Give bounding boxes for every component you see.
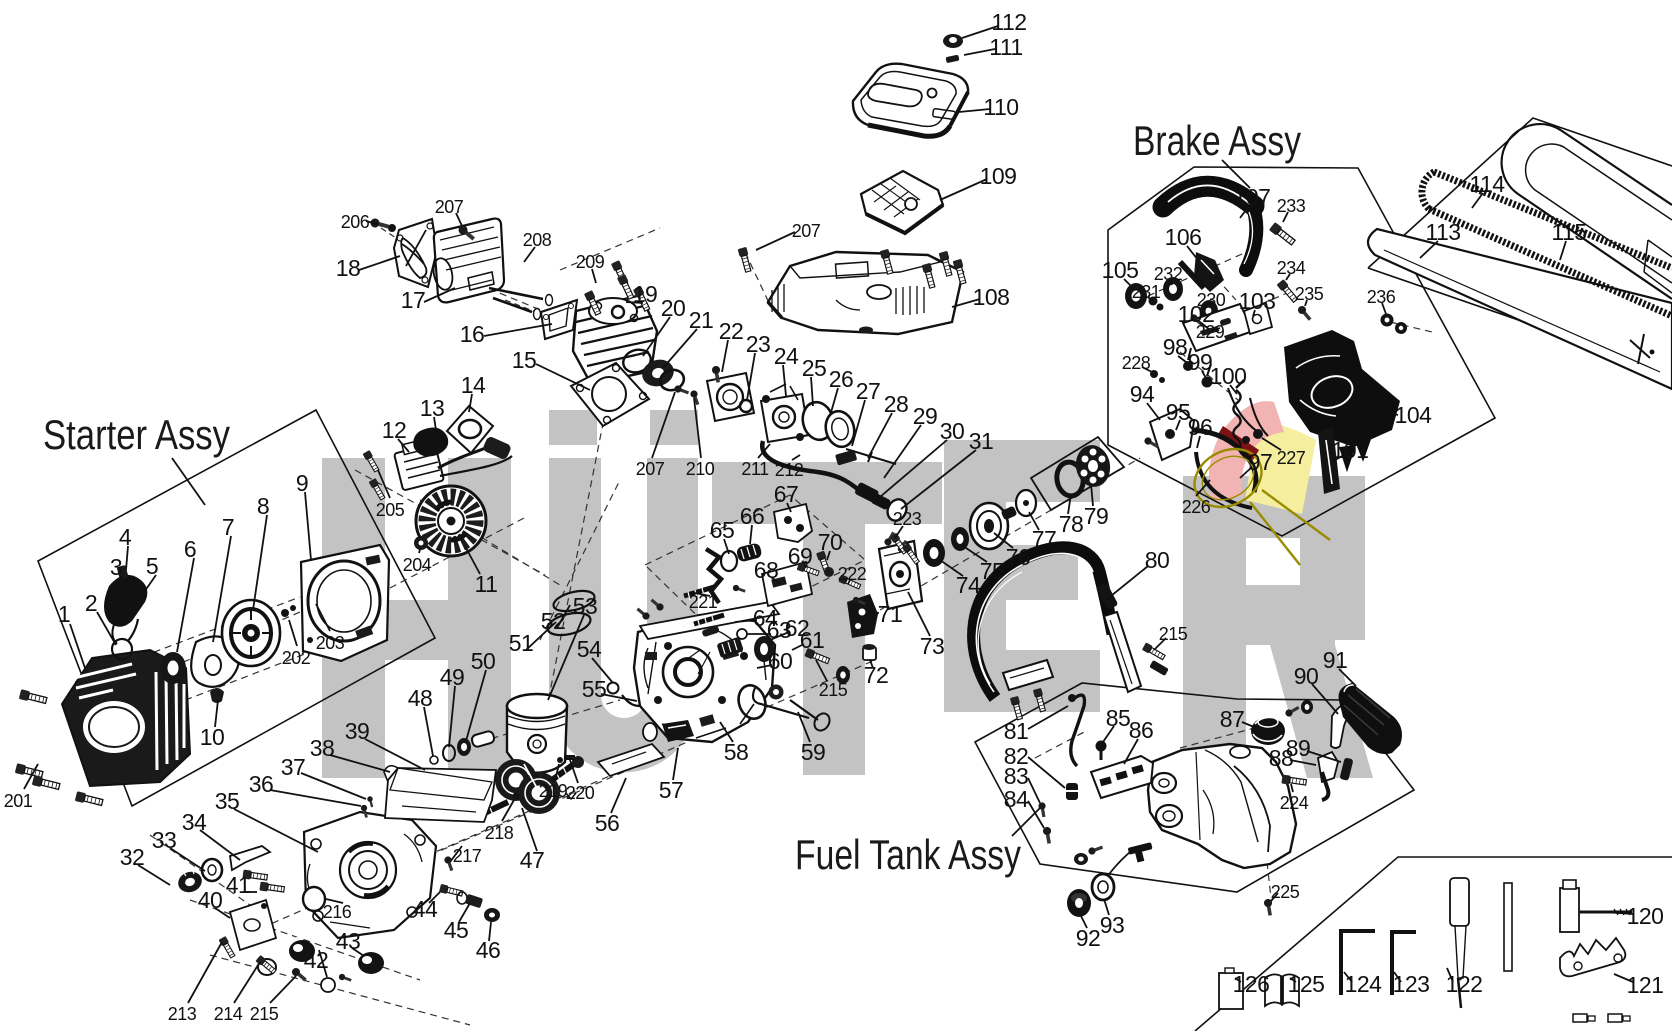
svg-text:69: 69	[788, 543, 813, 569]
svg-text:113: 113	[1425, 219, 1460, 245]
svg-text:Fuel Tank Assy: Fuel Tank Assy	[795, 831, 1021, 878]
svg-text:25: 25	[802, 355, 827, 381]
svg-text:227: 227	[1277, 448, 1306, 468]
svg-text:66: 66	[740, 503, 765, 529]
svg-text:224: 224	[1280, 793, 1309, 813]
svg-text:124: 124	[1345, 971, 1383, 997]
svg-text:79: 79	[1084, 503, 1109, 529]
svg-text:14: 14	[461, 372, 486, 398]
svg-text:208: 208	[523, 230, 552, 250]
svg-text:108: 108	[973, 284, 1010, 310]
svg-text:7: 7	[222, 514, 234, 540]
svg-text:65: 65	[710, 517, 735, 543]
svg-text:37: 37	[281, 754, 306, 780]
svg-text:222: 222	[838, 564, 867, 584]
svg-text:107: 107	[1234, 184, 1271, 210]
svg-text:1: 1	[58, 601, 70, 627]
svg-text:217: 217	[453, 846, 482, 866]
svg-text:223: 223	[893, 509, 922, 529]
svg-text:34: 34	[182, 809, 207, 835]
svg-text:54: 54	[577, 636, 602, 662]
svg-text:216: 216	[323, 902, 352, 922]
svg-text:35: 35	[215, 788, 240, 814]
svg-text:213: 213	[168, 1004, 197, 1024]
svg-text:80: 80	[1145, 547, 1170, 573]
svg-text:201: 201	[4, 791, 33, 811]
svg-text:32: 32	[120, 844, 145, 870]
svg-text:81: 81	[1004, 718, 1029, 744]
svg-text:75: 75	[980, 558, 1005, 584]
svg-text:3: 3	[110, 554, 122, 580]
svg-text:18: 18	[336, 255, 361, 281]
svg-text:112: 112	[991, 9, 1026, 35]
svg-text:30: 30	[940, 418, 965, 444]
svg-text:235: 235	[1295, 284, 1324, 304]
svg-text:106: 106	[1165, 224, 1202, 250]
svg-text:232: 232	[1154, 264, 1183, 284]
svg-text:104: 104	[1395, 402, 1433, 428]
svg-text:10: 10	[200, 724, 225, 750]
svg-text:77: 77	[1032, 526, 1057, 552]
svg-text:123: 123	[1393, 971, 1430, 997]
svg-text:92: 92	[1076, 925, 1101, 951]
svg-text:49: 49	[440, 664, 465, 690]
svg-text:87: 87	[1220, 706, 1245, 732]
svg-text:13: 13	[420, 395, 445, 421]
svg-text:2: 2	[85, 590, 97, 616]
svg-text:91: 91	[1323, 647, 1348, 673]
svg-text:230: 230	[1197, 290, 1226, 310]
svg-text:4: 4	[119, 524, 132, 550]
svg-text:33: 33	[152, 827, 177, 853]
svg-text:6: 6	[184, 536, 196, 562]
svg-text:42: 42	[304, 947, 329, 973]
svg-text:205: 205	[376, 500, 405, 520]
svg-text:44: 44	[413, 896, 438, 922]
svg-text:31: 31	[969, 428, 994, 454]
svg-text:105: 105	[1102, 257, 1139, 283]
svg-text:233: 233	[1277, 196, 1306, 216]
svg-text:89: 89	[1286, 735, 1311, 761]
svg-text:43: 43	[336, 928, 361, 954]
svg-text:111: 111	[989, 34, 1022, 60]
svg-text:16: 16	[460, 321, 485, 347]
svg-text:38: 38	[310, 735, 335, 761]
svg-text:56: 56	[595, 810, 620, 836]
svg-text:94: 94	[1130, 381, 1155, 407]
svg-text:57: 57	[659, 777, 684, 803]
svg-text:84: 84	[1004, 786, 1029, 812]
svg-text:115: 115	[1551, 219, 1586, 245]
svg-text:74: 74	[956, 572, 981, 598]
svg-text:228: 228	[1122, 353, 1151, 373]
svg-text:204: 204	[403, 555, 432, 575]
svg-text:202: 202	[282, 648, 311, 668]
svg-text:53: 53	[573, 593, 598, 619]
svg-text:5: 5	[146, 553, 158, 579]
svg-text:211: 211	[741, 459, 769, 479]
svg-text:46: 46	[476, 937, 501, 963]
svg-text:207: 207	[636, 459, 665, 479]
svg-text:221: 221	[689, 592, 718, 612]
svg-text:73: 73	[920, 633, 945, 659]
svg-text:51: 51	[509, 630, 534, 656]
svg-text:24: 24	[774, 343, 799, 369]
svg-text:209: 209	[576, 252, 605, 272]
svg-text:27: 27	[856, 378, 881, 404]
svg-text:39: 39	[345, 718, 370, 744]
svg-text:26: 26	[829, 366, 854, 392]
svg-text:17: 17	[401, 287, 426, 313]
svg-text:120: 120	[1627, 903, 1664, 929]
svg-text:9: 9	[296, 470, 308, 496]
svg-text:52: 52	[541, 608, 566, 634]
svg-text:207: 207	[792, 221, 821, 241]
svg-text:101: 101	[1332, 437, 1369, 463]
svg-text:93: 93	[1100, 912, 1125, 938]
svg-text:125: 125	[1288, 971, 1325, 997]
svg-text:19: 19	[633, 281, 658, 307]
svg-text:121: 121	[1627, 972, 1664, 998]
svg-text:8: 8	[257, 493, 269, 519]
svg-text:214: 214	[214, 1004, 243, 1024]
svg-text:219: 219	[539, 781, 568, 801]
svg-text:212: 212	[775, 460, 804, 480]
svg-text:225: 225	[1271, 882, 1300, 902]
svg-text:109: 109	[980, 163, 1017, 189]
svg-text:15: 15	[512, 347, 537, 373]
svg-text:100: 100	[1210, 363, 1247, 389]
svg-text:98: 98	[1163, 334, 1188, 360]
svg-text:36: 36	[249, 771, 274, 797]
svg-text:58: 58	[724, 739, 749, 765]
svg-text:85: 85	[1106, 705, 1131, 731]
svg-text:236: 236	[1367, 287, 1396, 307]
svg-text:206: 206	[341, 212, 370, 232]
svg-text:218: 218	[485, 823, 514, 843]
svg-text:229: 229	[1196, 322, 1225, 342]
svg-text:60: 60	[768, 648, 793, 674]
svg-text:72: 72	[864, 662, 889, 688]
svg-text:41: 41	[226, 872, 251, 898]
svg-text:23: 23	[746, 331, 771, 357]
svg-text:68: 68	[754, 557, 779, 583]
svg-text:47: 47	[520, 847, 545, 873]
svg-text:90: 90	[1294, 663, 1319, 689]
svg-text:29: 29	[913, 403, 938, 429]
svg-text:11: 11	[475, 571, 498, 597]
svg-text:97: 97	[1248, 449, 1273, 475]
svg-text:Brake Assy: Brake Assy	[1133, 117, 1301, 164]
svg-text:76: 76	[1006, 544, 1031, 570]
svg-text:64: 64	[753, 605, 778, 631]
svg-text:40: 40	[198, 887, 223, 913]
svg-text:86: 86	[1129, 717, 1154, 743]
svg-text:114: 114	[1469, 171, 1505, 197]
svg-text:71: 71	[878, 601, 903, 627]
svg-text:207: 207	[435, 197, 464, 217]
svg-text:203: 203	[316, 633, 345, 653]
svg-text:210: 210	[686, 459, 715, 479]
svg-text:22: 22	[719, 318, 744, 344]
svg-text:21: 21	[689, 307, 714, 333]
svg-text:231: 231	[1132, 282, 1161, 302]
svg-text:28: 28	[884, 391, 909, 417]
svg-text:226: 226	[1182, 497, 1211, 517]
svg-text:103: 103	[1239, 288, 1276, 314]
svg-text:59: 59	[801, 739, 826, 765]
svg-text:Starter Assy: Starter Assy	[43, 411, 230, 458]
svg-text:234: 234	[1277, 258, 1306, 278]
svg-text:45: 45	[444, 917, 469, 943]
svg-text:12: 12	[382, 417, 407, 443]
svg-text:122: 122	[1446, 971, 1483, 997]
svg-text:215: 215	[250, 1004, 279, 1024]
svg-text:50: 50	[471, 648, 496, 674]
svg-text:95: 95	[1166, 399, 1191, 425]
svg-text:215: 215	[1159, 624, 1188, 644]
svg-text:126: 126	[1233, 971, 1270, 997]
svg-text:55: 55	[582, 676, 607, 702]
svg-text:78: 78	[1059, 511, 1084, 537]
svg-text:220: 220	[566, 783, 595, 803]
svg-text:48: 48	[408, 685, 433, 711]
svg-text:215: 215	[819, 680, 848, 700]
svg-text:67: 67	[774, 481, 799, 507]
svg-text:110: 110	[983, 94, 1018, 120]
svg-text:96: 96	[1188, 414, 1213, 440]
svg-text:70: 70	[818, 529, 843, 555]
svg-text:20: 20	[661, 295, 686, 321]
